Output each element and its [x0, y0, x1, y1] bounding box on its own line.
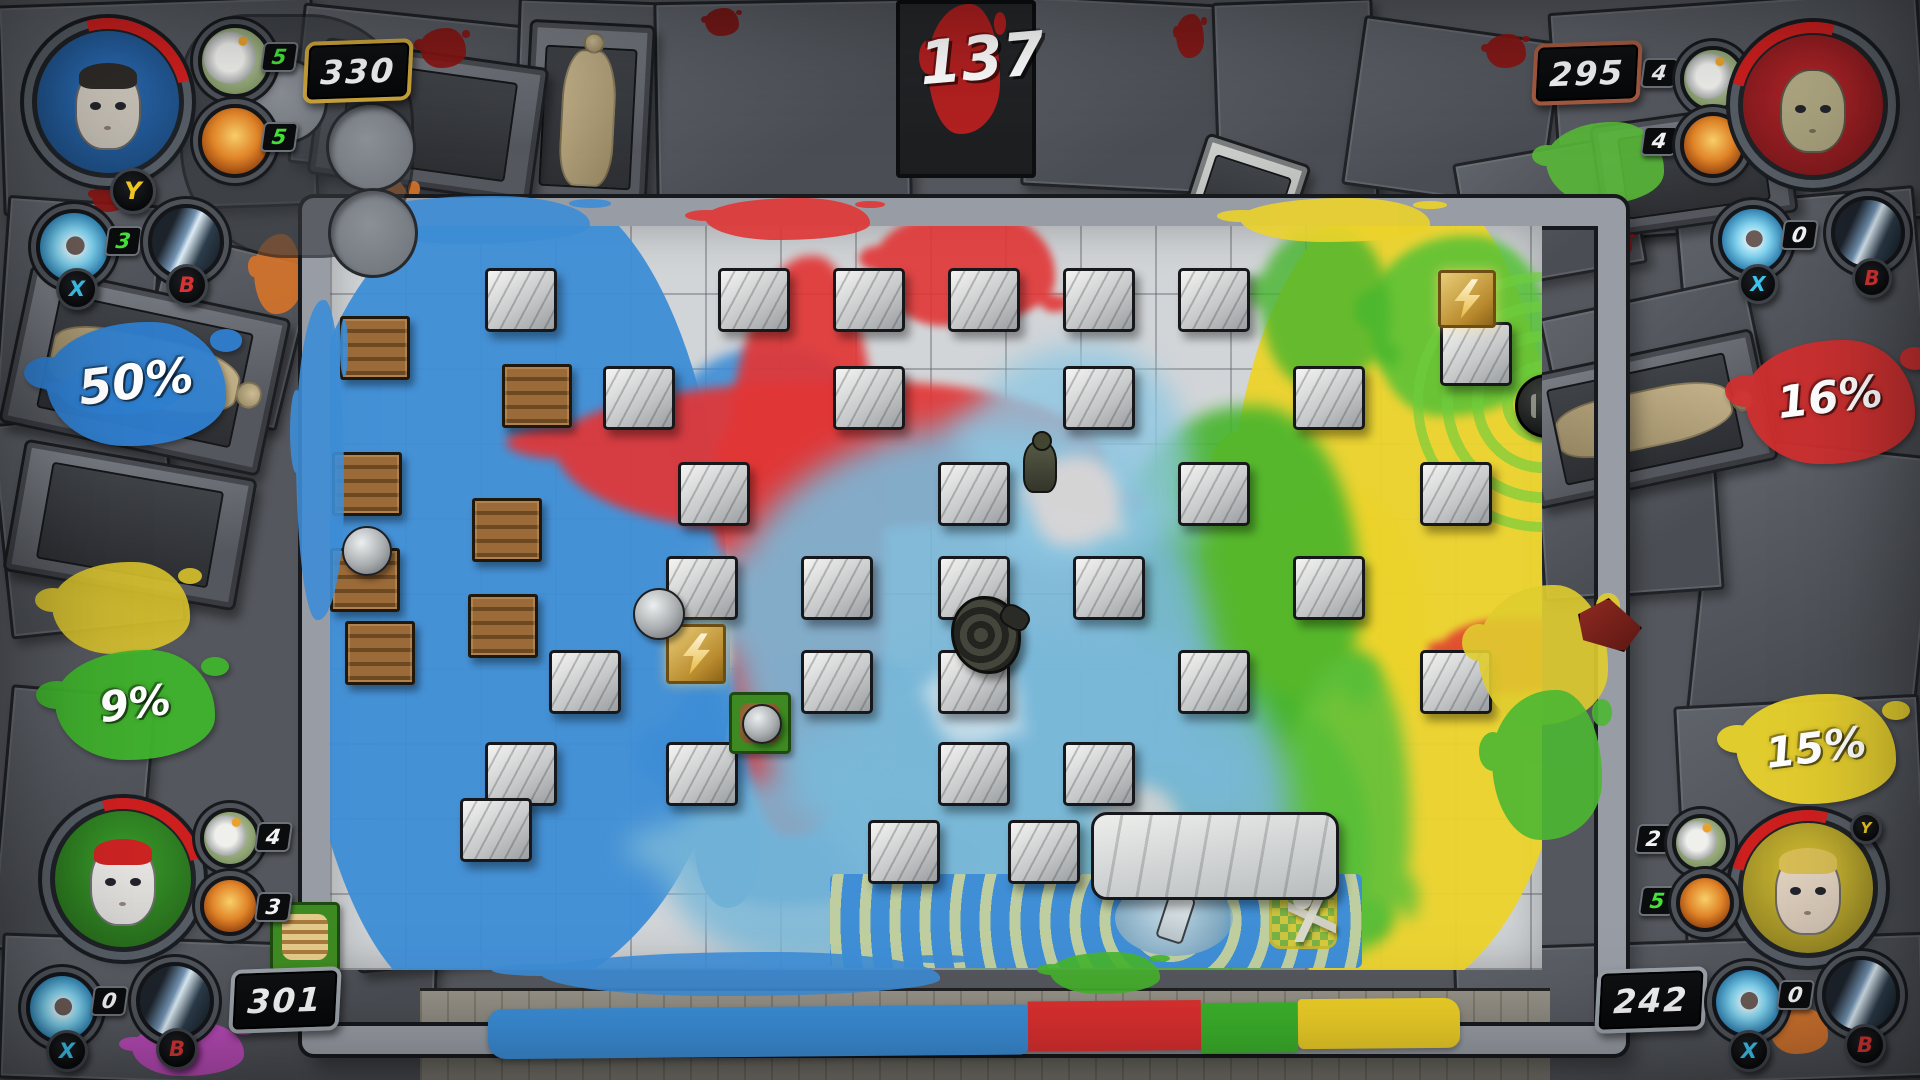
power-count: 5	[260, 122, 299, 152]
bomb-count: 4	[1640, 58, 1679, 88]
coverage-segment-yellow	[1298, 998, 1460, 1049]
bomb-count: 4	[254, 822, 293, 852]
score-plate: 295	[1531, 40, 1643, 106]
player2-hud: 295 4 4 0 X B 16%	[1508, 6, 1918, 476]
player3-hud: 9% 4 3 301 0 X B	[6, 610, 416, 1076]
coverage-percent: 9%	[55, 650, 215, 760]
button-b-badge: B	[166, 264, 208, 306]
bomb-count: 5	[260, 42, 299, 72]
ability-x-count: 3	[104, 226, 143, 256]
player3-portrait	[50, 806, 196, 952]
ability-x-icon	[1712, 966, 1784, 1038]
coverage-segment-green	[1201, 1002, 1299, 1053]
score-value: 295	[1548, 52, 1625, 94]
button-y-badge: Y	[1850, 812, 1882, 844]
power-count: 3	[254, 892, 293, 922]
player2-face	[1780, 69, 1846, 153]
ability-x-count: 0	[1780, 220, 1819, 250]
coverage-percent: 15%	[1736, 694, 1896, 804]
ability-b-icon	[1822, 956, 1900, 1034]
coverage-percent: 50%	[46, 322, 226, 446]
button-b-badge: B	[156, 1028, 198, 1070]
empty-item-slot	[326, 102, 416, 192]
coverage-segment-blue	[488, 1005, 1028, 1060]
bomb-item-icon	[200, 808, 260, 868]
button-b-badge: B	[1844, 1024, 1886, 1066]
paint-splat-#46b52c	[1050, 952, 1160, 994]
empty-item-slot	[328, 188, 418, 278]
coverage-segment-red	[1028, 1000, 1201, 1052]
score-value: 330	[319, 50, 396, 92]
score-plate: 330	[302, 38, 414, 104]
paint-splat-#ecd32b	[1240, 198, 1430, 242]
power-item-icon	[1676, 874, 1734, 932]
player3-face	[90, 842, 156, 926]
player2-portrait	[1738, 30, 1888, 180]
bomb-item-icon	[1672, 814, 1730, 872]
ability-x-count: 0	[90, 986, 129, 1016]
paint-splat-#e23636	[705, 198, 870, 240]
player4-face	[1775, 851, 1841, 935]
power-count: 5	[1638, 886, 1677, 916]
score-plate: 301	[228, 966, 342, 1034]
coverage-percent: 16%	[1745, 340, 1915, 464]
button-x-badge: X	[56, 268, 98, 310]
coverage-bar	[488, 1000, 1460, 1058]
power-count: 4	[1640, 126, 1679, 156]
player1-portrait	[32, 26, 184, 178]
score-value: 301	[246, 979, 323, 1021]
power-item-icon	[200, 876, 260, 936]
button-x-badge: X	[46, 1030, 88, 1072]
button-x-badge: X	[1728, 1030, 1770, 1072]
score-plate: 242	[1594, 966, 1708, 1034]
player1-hud: Y 5 330 5 3 X B 50%	[10, 6, 420, 476]
player4-hud: 15% Y 2 5 242 0 X B	[1506, 610, 1916, 1076]
paint-splat-#3d8dd6	[540, 952, 940, 996]
ability-x-count: 0	[1776, 980, 1815, 1010]
button-b-badge: B	[1852, 258, 1892, 298]
button-y-badge: Y	[110, 168, 156, 214]
button-x-badge: X	[1738, 264, 1778, 304]
score-value: 242	[1612, 979, 1689, 1021]
game-screen[interactable]: 137 Y 5 330 5 3 X B 50% 295 4 4	[0, 0, 1920, 1080]
bomb-count: 2	[1634, 824, 1673, 854]
player1-face	[75, 66, 141, 150]
